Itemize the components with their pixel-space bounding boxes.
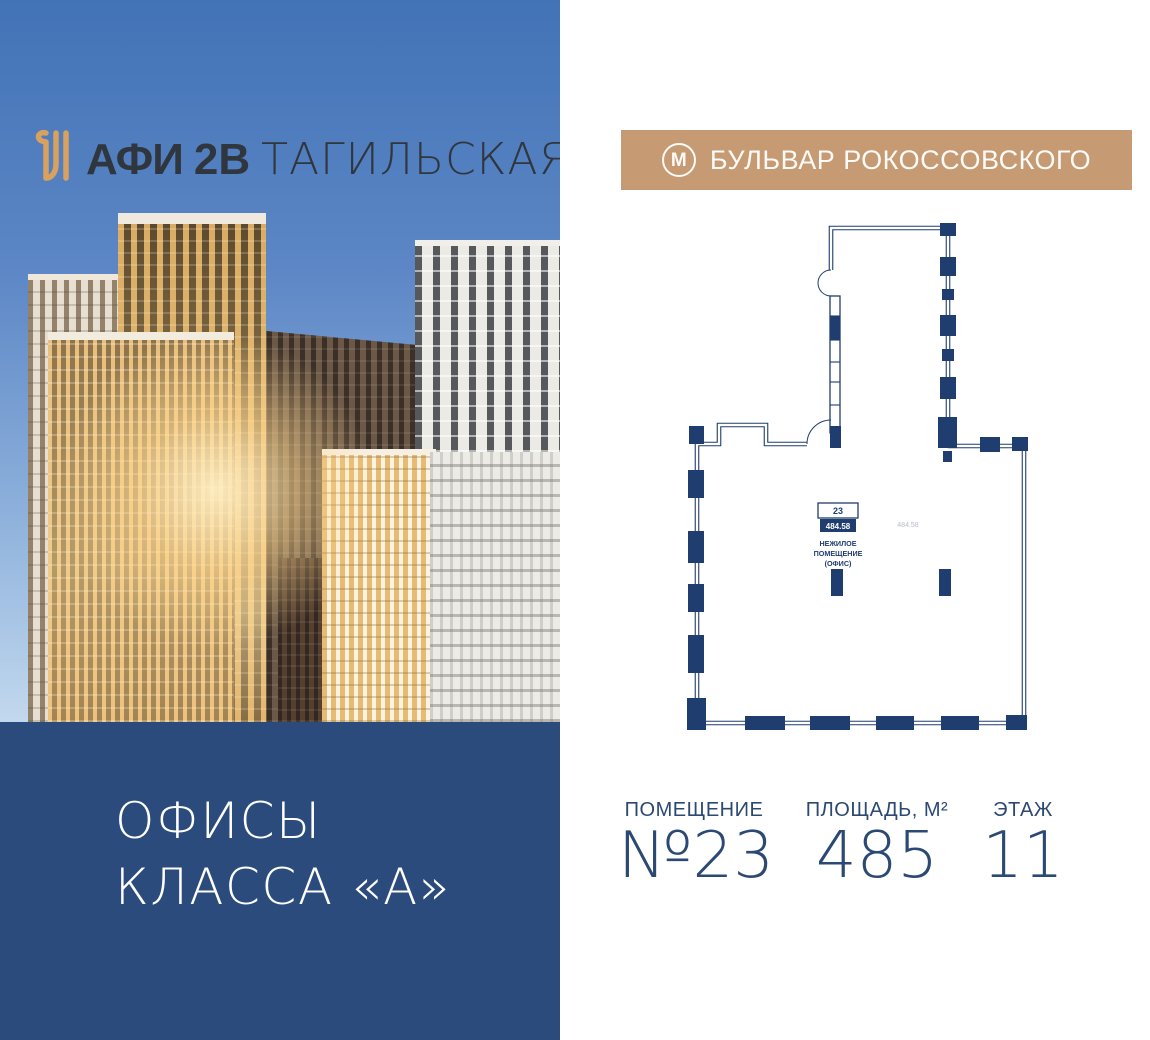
building-tower-white-low [430,452,560,722]
tagline-line2: КЛАССА «А» [115,854,451,920]
plan-wall-columns [687,223,1028,730]
logo-text-afi: АФИ [86,138,183,182]
plan-partition [830,296,841,448]
tagline-line1: ОФИСЫ [115,788,451,854]
logo-text-tagilskaya: ТАГИЛЬСКАЯ [261,138,560,182]
unit-label: НЕЖИЛОЕ ПОМЕЩЕНИЕ (ОФИС) [814,539,863,568]
metro-station-label: БУЛЬВАР РОКОССОВСКОГО [710,145,1091,176]
unit-number: 23 [833,506,843,516]
metro-badge: М БУЛЬВАР РОКОССОВСКОГО [621,130,1132,190]
floor-plan: 23 484.58 НЕЖИЛОЕ ПОМЕЩЕНИЕ (ОФИС) 484.5… [680,220,1040,750]
sun-glare [55,330,375,650]
unit-number-box: 23 484.58 [818,503,858,532]
metro-m-icon: М [662,143,696,177]
unit-label-line1: НЕЖИЛОЕ [819,539,856,548]
detail-value-floor: 11 [963,824,1083,888]
afi-logo: АФИ 2В ТАГИЛЬСКАЯ [33,128,560,182]
unit-label-line3: (ОФИС) [825,559,852,568]
logo-text-2b: 2В [194,138,250,182]
listing-card: АФИ 2В ТАГИЛЬСКАЯ ОФИСЫ КЛАССА «А» М БУЛ… [0,0,1150,1040]
detail-value-unit: №23 [618,824,770,888]
class-a-panel: ОФИСЫ КЛАССА «А» [0,722,560,1040]
plan-interior-columns [831,569,951,596]
left-panel: АФИ 2В ТАГИЛЬСКАЯ ОФИСЫ КЛАССА «А» [0,0,560,1040]
unit-area: 484.58 [826,522,851,531]
plan-walls [697,228,1024,723]
plan-door-arcs [807,270,831,444]
area-watermark: 484.58 [897,522,919,529]
afi-monogram-icon [33,128,77,182]
tagline: ОФИСЫ КЛАССА «А» [115,788,451,920]
detail-value-area: 485 [798,824,956,888]
building-render [0,218,560,722]
logo-text: АФИ 2В ТАГИЛЬСКАЯ [86,138,560,182]
unit-label-line2: ПОМЕЩЕНИЕ [814,549,863,558]
